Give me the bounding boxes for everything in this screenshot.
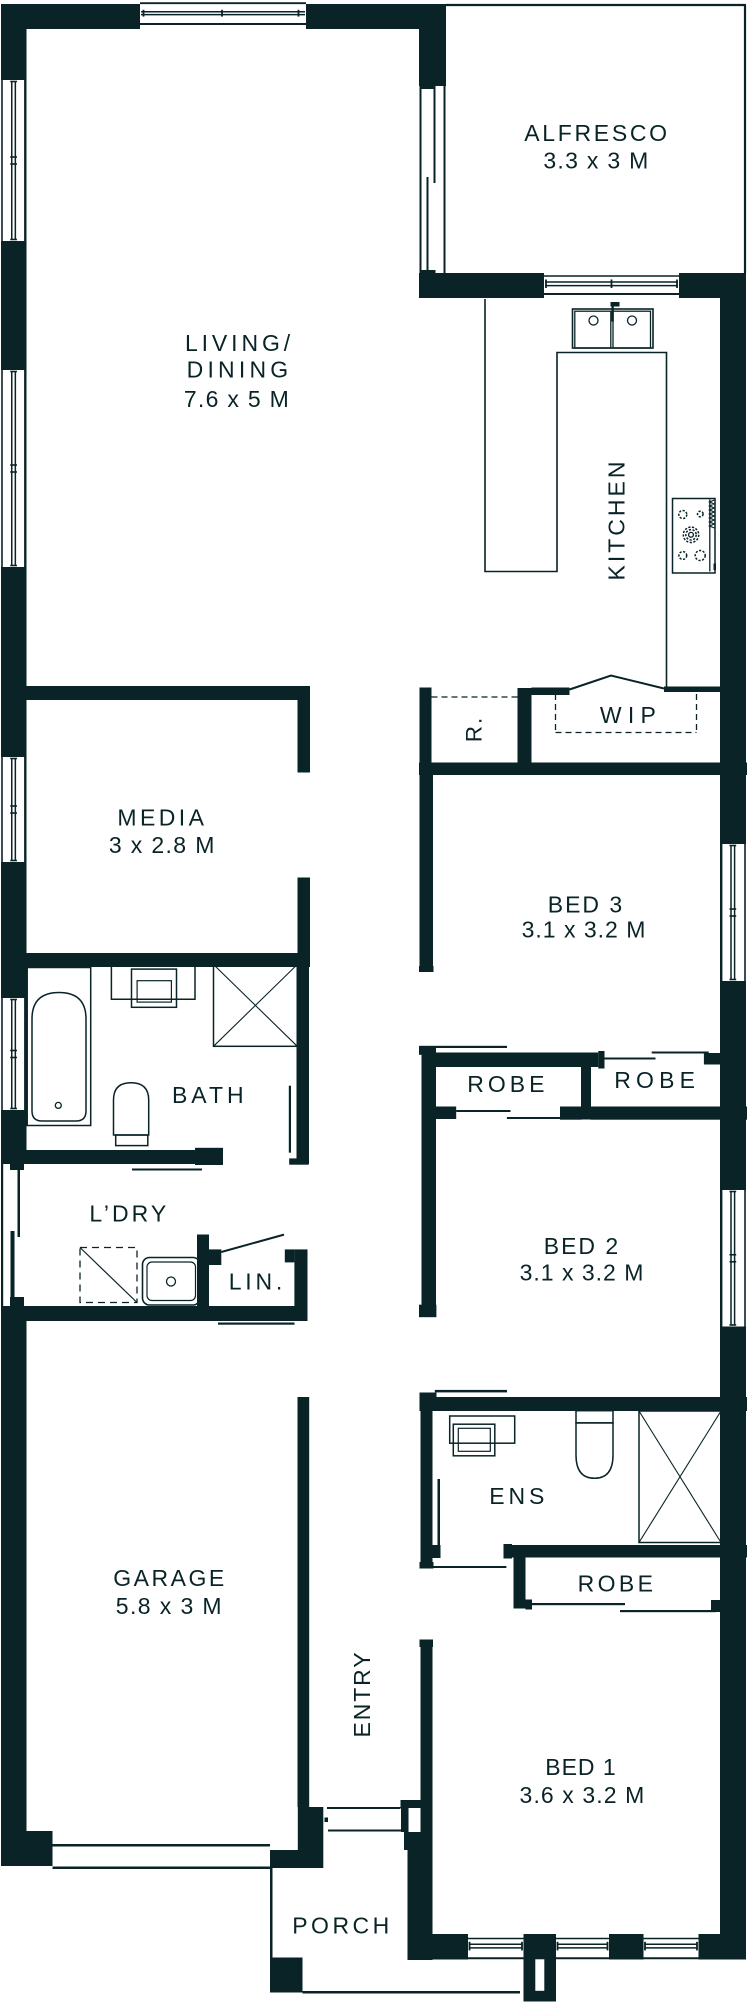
- svg-text:R.: R.: [461, 716, 486, 743]
- svg-text:3.1 x 3.2 M: 3.1 x 3.2 M: [520, 1260, 645, 1286]
- svg-text:3 x 2.8 M: 3 x 2.8 M: [109, 832, 216, 858]
- svg-text:7.6 x 5 M: 7.6 x 5 M: [184, 386, 290, 412]
- svg-text:ALFRESCO: ALFRESCO: [524, 120, 670, 146]
- svg-text:BED 2: BED 2: [544, 1233, 620, 1259]
- svg-text:3.6 x 3.2 M: 3.6 x 3.2 M: [520, 1782, 646, 1808]
- svg-text:3.1 x 3.2 M: 3.1 x 3.2 M: [522, 917, 647, 943]
- svg-text:LIN.: LIN.: [229, 1269, 286, 1295]
- svg-text:KITCHEN: KITCHEN: [604, 459, 630, 581]
- svg-text:WIP: WIP: [600, 702, 662, 728]
- svg-text:ROBE: ROBE: [614, 1067, 700, 1093]
- svg-text:ROBE: ROBE: [578, 1571, 657, 1597]
- svg-text:ROBE: ROBE: [467, 1071, 548, 1097]
- svg-text:ENTRY: ENTRY: [349, 1650, 375, 1737]
- svg-text:MEDIA: MEDIA: [117, 804, 207, 830]
- svg-text:BED 3: BED 3: [548, 892, 624, 918]
- svg-text:BATH: BATH: [172, 1082, 248, 1108]
- svg-text:3.3 x 3 M: 3.3 x 3 M: [543, 148, 649, 174]
- svg-text:LIVING/: LIVING/: [185, 330, 294, 356]
- svg-text:PORCH: PORCH: [292, 1913, 393, 1939]
- svg-text:DINING: DINING: [187, 357, 293, 383]
- svg-text:GARAGE: GARAGE: [113, 1565, 226, 1591]
- svg-text:ENS: ENS: [489, 1483, 548, 1509]
- svg-text:BED 1: BED 1: [545, 1754, 616, 1780]
- svg-text:L’DRY: L’DRY: [89, 1201, 169, 1227]
- svg-text:5.8 x 3 M: 5.8 x 3 M: [116, 1593, 223, 1619]
